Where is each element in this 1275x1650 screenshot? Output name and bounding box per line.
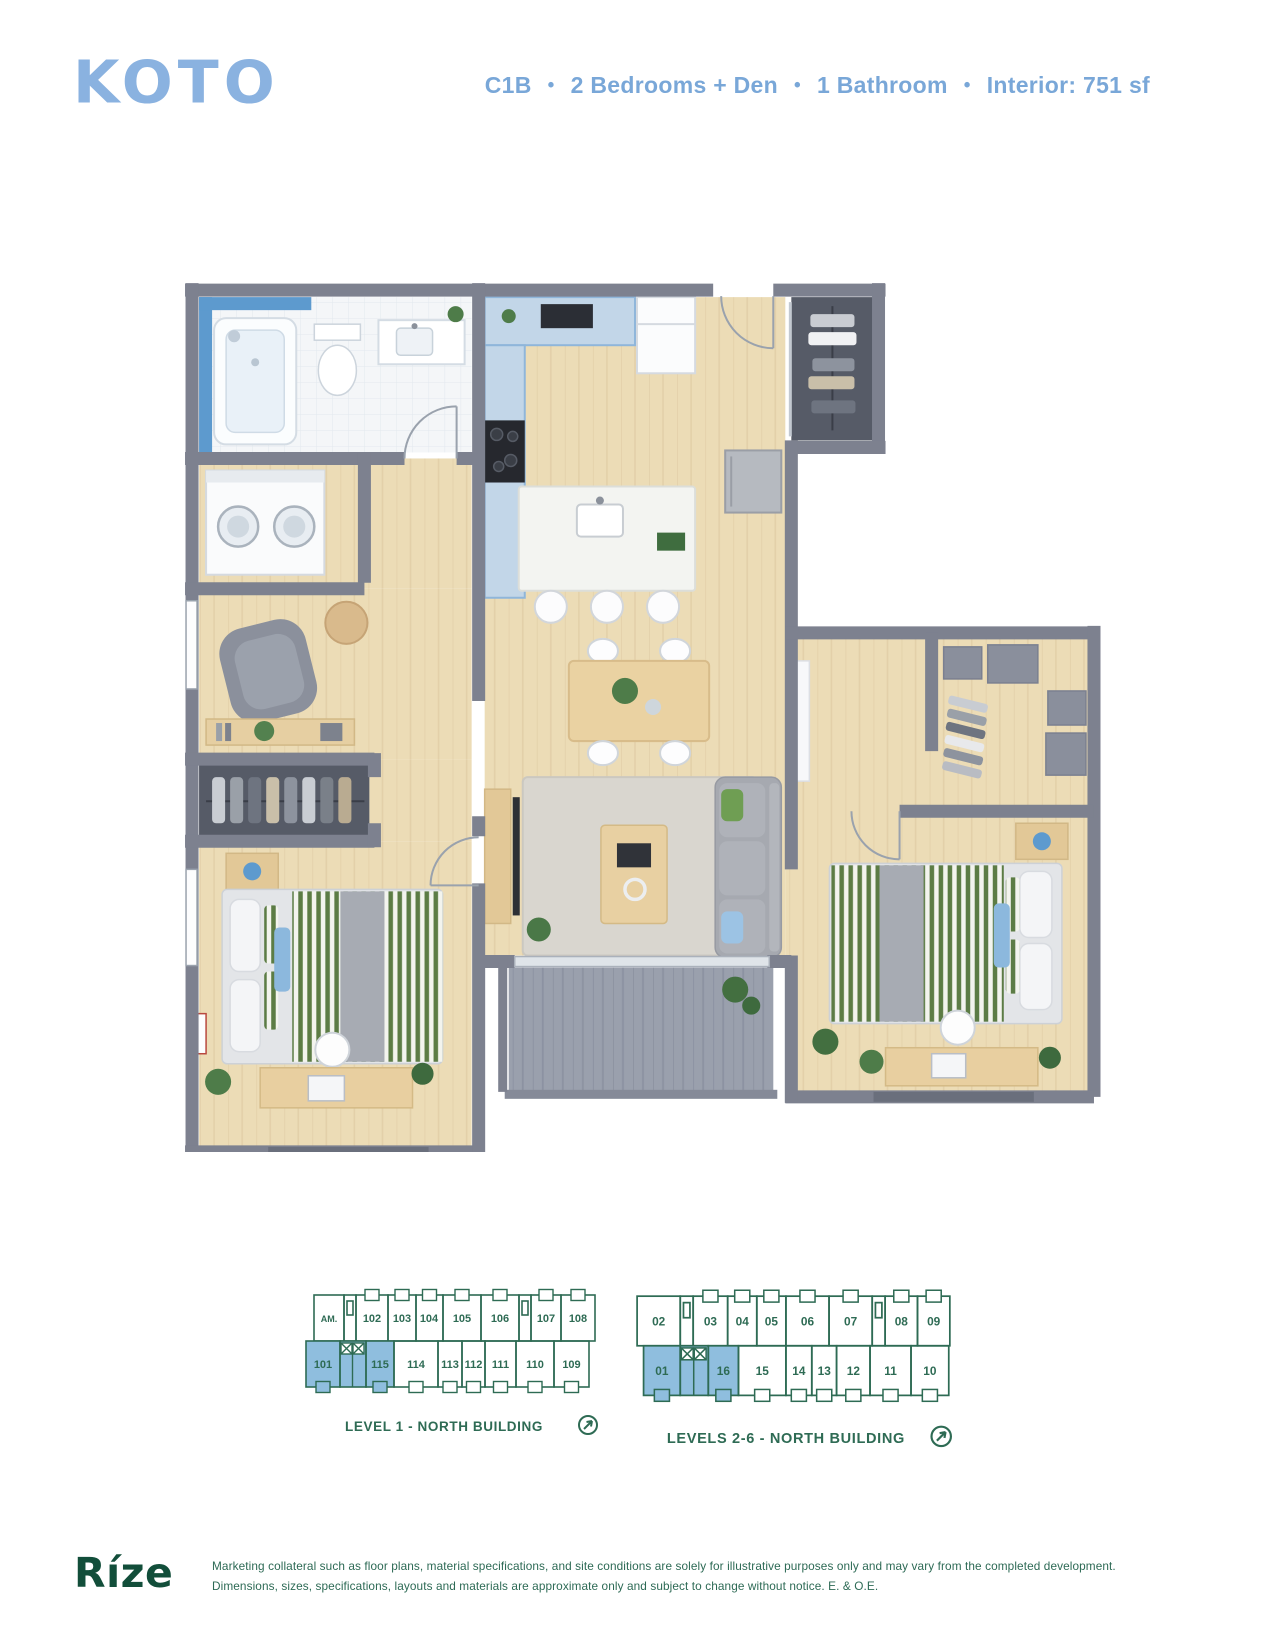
plant	[1039, 1047, 1061, 1069]
unit-number: 14	[792, 1364, 806, 1378]
unit-number: 105	[453, 1313, 471, 1325]
separator-dot: •	[964, 75, 971, 97]
blue-accent-wall	[199, 297, 311, 310]
unit-number: 07	[844, 1314, 858, 1328]
dining-chair	[588, 741, 618, 765]
unit-number-highlighted: 115	[371, 1359, 389, 1371]
plant	[448, 306, 464, 322]
window	[874, 1092, 1034, 1102]
tub-drain	[251, 358, 259, 366]
window	[268, 1147, 428, 1152]
laptop-icon	[617, 843, 651, 867]
side-table	[325, 602, 367, 644]
unit-number: 05	[765, 1314, 779, 1328]
books	[216, 723, 222, 741]
stair-shaft	[872, 1296, 885, 1346]
sofa-cushion	[719, 841, 765, 895]
plant	[527, 917, 551, 941]
tv-icon	[513, 797, 520, 915]
keyplan-label: LEVEL 1 - NORTH BUILDING	[345, 1419, 543, 1434]
plant	[502, 309, 516, 323]
unit-number: 104	[420, 1313, 439, 1325]
plan-feature-bathroom: 1 Bathroom	[817, 72, 948, 98]
storage-box	[944, 647, 982, 679]
bathtub-basin	[226, 330, 284, 432]
separator-dot: •	[794, 75, 801, 97]
unit-number: 111	[492, 1359, 509, 1371]
blue-pillow	[994, 903, 1010, 967]
burner	[491, 428, 503, 440]
compass-icon	[579, 1416, 597, 1434]
storage-box	[1048, 691, 1086, 725]
unit-number: 03	[704, 1314, 718, 1328]
keyplan-levels-2-6: 02 03 04 05 06 07 08 09 01 16 15 14 13 1…	[622, 1281, 952, 1458]
dining-chair	[660, 741, 690, 765]
desk-chair	[315, 1033, 349, 1067]
window	[186, 601, 197, 689]
storage-box	[1046, 733, 1086, 775]
vase	[645, 699, 661, 715]
pillow	[230, 980, 260, 1052]
unit-number: 06	[801, 1314, 815, 1328]
faucet-icon	[596, 497, 604, 505]
unit-number: 113	[441, 1359, 459, 1371]
toilet-tank	[314, 324, 360, 340]
hall-floor	[369, 759, 471, 841]
bar-stool	[535, 591, 567, 623]
window	[186, 869, 197, 965]
unit-number: 04	[736, 1314, 750, 1328]
throw-blanket	[340, 891, 384, 1061]
floor-plan-rendering	[172, 270, 1104, 1152]
burner	[505, 454, 517, 466]
plan-code: C1B	[485, 72, 532, 98]
planter-box	[657, 533, 685, 551]
plan-summary: C1B•2 Bedrooms + Den•1 Bathroom•Interior…	[485, 72, 1150, 99]
plant	[742, 997, 760, 1015]
floor-plan-sheet: KOTO C1B•2 Bedrooms + Den•1 Bathroom•Int…	[0, 0, 1275, 1650]
fridge	[637, 297, 695, 373]
plant	[412, 1063, 434, 1085]
burner	[494, 461, 504, 471]
unit-number: 106	[491, 1313, 509, 1325]
unit-number: 09	[927, 1314, 941, 1328]
dining-table	[569, 661, 709, 741]
unit-number: 103	[393, 1313, 411, 1325]
stair-shaft-inner	[683, 1303, 689, 1318]
stove	[485, 420, 525, 482]
lamp-icon	[243, 862, 261, 880]
stair-shaft	[344, 1295, 356, 1341]
living-room	[485, 777, 782, 957]
stair-shaft-inner	[522, 1301, 528, 1315]
sliding-glass-door	[515, 957, 770, 967]
bar-stool	[591, 591, 623, 623]
coffee-table	[601, 825, 667, 923]
disclaimer-text: Marketing collateral such as floor plans…	[212, 1556, 1134, 1596]
plan-feature-interior: Interior: 751 sf	[987, 72, 1150, 98]
pillow	[230, 899, 260, 971]
microwave-icon	[541, 304, 593, 328]
dining-chair	[660, 639, 690, 663]
unit-number-highlighted: 16	[717, 1364, 731, 1378]
floor-plan-svg	[172, 270, 1104, 1152]
unit-number: 12	[847, 1364, 861, 1378]
storage-box	[988, 645, 1038, 683]
separator-dot: •	[548, 75, 555, 97]
unit-number: 110	[526, 1359, 544, 1371]
plant	[254, 721, 274, 741]
plan-feature-bedrooms: 2 Bedrooms + Den	[571, 72, 778, 98]
unit-number: 02	[652, 1314, 666, 1328]
pillow	[1020, 871, 1052, 937]
dishwasher	[725, 450, 781, 512]
throw-blanket	[880, 865, 924, 1021]
dryer-door-inner	[283, 516, 305, 538]
sofa-back	[769, 783, 779, 951]
unit-number: 11	[884, 1364, 897, 1378]
unit-number: 107	[537, 1313, 555, 1325]
keyplan-label: LEVELS 2-6 - NORTH BUILDING	[667, 1431, 905, 1447]
unit-number: 10	[923, 1364, 937, 1378]
faucet-icon	[412, 323, 418, 329]
unit-number-highlighted: 101	[314, 1359, 332, 1371]
washer-controls	[206, 470, 324, 482]
keyplans: AM. 102 103 104 105 106 107 108 101 115 …	[294, 1281, 952, 1458]
keyplan-level-1: AM. 102 103 104 105 106 107 108 101 115 …	[294, 1281, 600, 1445]
bar-stool	[647, 591, 679, 623]
unit-number: 08	[895, 1314, 909, 1328]
unit-number: 112	[465, 1359, 483, 1371]
koto-logo: KOTO	[73, 49, 280, 118]
washer-door-inner	[227, 516, 249, 538]
plant	[859, 1050, 883, 1074]
books	[225, 723, 231, 741]
unit-number: AM.	[321, 1314, 338, 1324]
toilet	[318, 345, 356, 395]
pillow	[1020, 943, 1052, 1009]
vanity-sink	[396, 328, 432, 355]
lamp-icon	[1033, 832, 1051, 850]
unit-number: 13	[818, 1364, 832, 1378]
speaker-icon	[320, 723, 342, 741]
burner	[508, 431, 518, 441]
stair-shaft-inner	[875, 1303, 881, 1318]
unit-number: 15	[756, 1364, 770, 1378]
compass-icon	[932, 1427, 951, 1446]
plant	[812, 1029, 838, 1055]
shower-head-icon	[228, 330, 240, 342]
unit-number: 109	[562, 1359, 580, 1371]
blue-pillow	[721, 911, 743, 943]
plant	[205, 1069, 231, 1095]
unit-number: 114	[407, 1359, 426, 1371]
blue-pillow	[274, 927, 290, 991]
tv-console	[485, 789, 511, 923]
green-pillow	[721, 789, 743, 821]
balcony-railing	[505, 1090, 778, 1099]
blue-accent-wall	[199, 297, 212, 452]
island-sink	[577, 505, 623, 537]
stair-shaft-inner	[347, 1301, 353, 1315]
desk-chair	[941, 1011, 975, 1045]
laptop-icon	[308, 1076, 344, 1101]
dining-chair	[588, 639, 618, 663]
laptop-icon	[932, 1054, 966, 1078]
unit-number-highlighted: 01	[655, 1364, 669, 1378]
stair-shaft	[680, 1296, 693, 1346]
plant	[612, 678, 638, 704]
unit-number: 102	[363, 1313, 381, 1325]
rize-logo: Ríze	[74, 1549, 173, 1597]
stair-shaft	[519, 1295, 531, 1341]
plant	[722, 977, 748, 1003]
unit-number: 108	[569, 1313, 587, 1325]
